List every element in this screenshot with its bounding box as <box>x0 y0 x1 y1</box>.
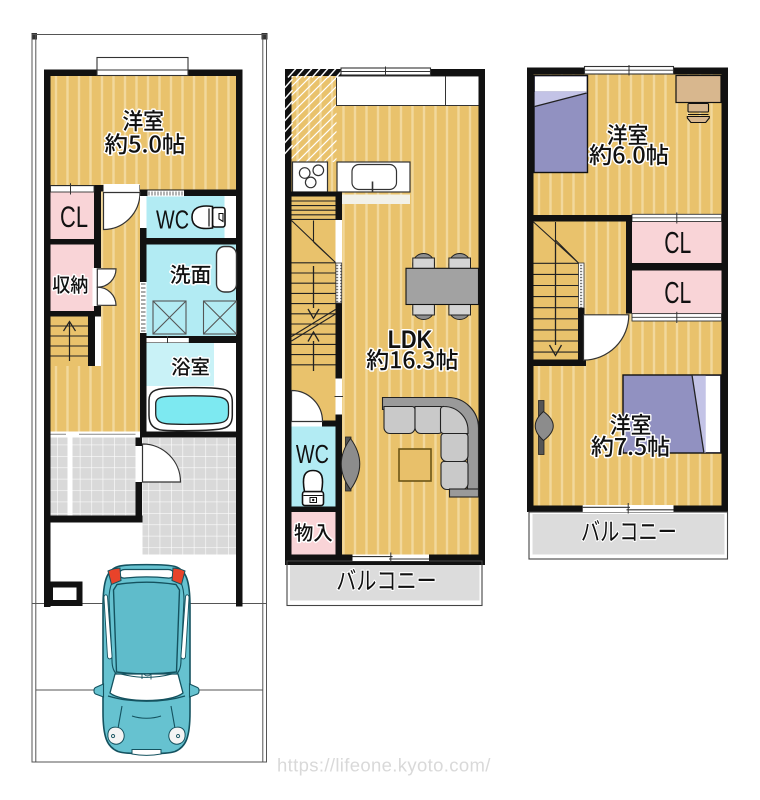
svg-text:https://lifeone.kyoto.com/: https://lifeone.kyoto.com/ <box>277 755 491 776</box>
svg-text:WC: WC <box>156 205 189 235</box>
svg-text:WC: WC <box>296 439 329 469</box>
svg-text:CL: CL <box>664 225 691 260</box>
svg-text:CL: CL <box>664 275 691 310</box>
svg-text:CL: CL <box>60 201 88 234</box>
